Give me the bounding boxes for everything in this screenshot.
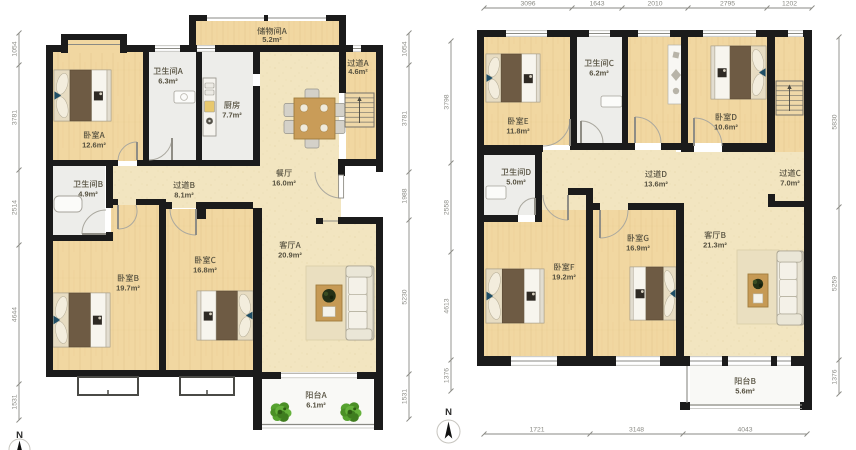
svg-text:5.6m²: 5.6m² [735, 387, 755, 396]
svg-text:4.6m²: 4.6m² [348, 67, 368, 76]
svg-text:1376: 1376 [832, 369, 839, 384]
svg-text:4043: 4043 [737, 427, 752, 434]
svg-text:11.8m²: 11.8m² [506, 127, 530, 136]
svg-text:3798: 3798 [444, 94, 451, 109]
svg-text:1988: 1988 [402, 188, 409, 203]
svg-text:1531: 1531 [12, 394, 19, 409]
svg-text:1376: 1376 [444, 368, 451, 383]
svg-text:3781: 3781 [12, 110, 19, 125]
svg-text:6.2m²: 6.2m² [589, 69, 609, 78]
svg-text:10.6m²: 10.6m² [714, 123, 738, 132]
svg-text:6.3m²: 6.3m² [158, 77, 178, 86]
svg-text:16.9m²: 16.9m² [626, 244, 650, 253]
svg-text:4.9m²: 4.9m² [78, 190, 98, 199]
svg-text:7.7m²: 7.7m² [222, 111, 242, 120]
svg-text:5.2m²: 5.2m² [262, 35, 282, 44]
svg-text:5230: 5230 [402, 289, 409, 304]
svg-text:5.0m²: 5.0m² [506, 178, 526, 187]
svg-text:3096: 3096 [520, 1, 535, 8]
svg-text:8.1m²: 8.1m² [174, 191, 194, 200]
svg-text:13.6m²: 13.6m² [644, 180, 668, 189]
svg-text:19.7m²: 19.7m² [116, 284, 140, 293]
svg-text:1643: 1643 [589, 1, 604, 8]
svg-text:3781: 3781 [402, 111, 409, 126]
svg-text:1202: 1202 [782, 1, 797, 8]
svg-text:1531: 1531 [402, 389, 409, 404]
svg-text:N: N [445, 407, 452, 418]
svg-text:2010: 2010 [647, 1, 662, 8]
svg-text:20.9m²: 20.9m² [278, 251, 302, 260]
svg-text:2558: 2558 [444, 200, 451, 215]
svg-text:6.1m²: 6.1m² [306, 401, 326, 410]
svg-text:4644: 4644 [12, 307, 19, 322]
svg-text:12.6m²: 12.6m² [82, 141, 106, 150]
svg-text:5259: 5259 [832, 276, 839, 291]
svg-text:4613: 4613 [444, 298, 451, 313]
svg-text:19.2m²: 19.2m² [552, 273, 576, 282]
svg-text:21.3m²: 21.3m² [703, 241, 727, 250]
svg-text:1054: 1054 [12, 41, 19, 56]
svg-text:16.0m²: 16.0m² [272, 179, 296, 188]
svg-text:3148: 3148 [629, 427, 644, 434]
svg-text:1054: 1054 [402, 41, 409, 56]
svg-text:1721: 1721 [529, 427, 544, 434]
svg-text:2514: 2514 [12, 200, 19, 215]
svg-text:16.8m²: 16.8m² [193, 266, 217, 275]
svg-text:5830: 5830 [832, 114, 839, 129]
svg-text:2795: 2795 [720, 1, 735, 8]
svg-text:7.0m²: 7.0m² [780, 179, 800, 188]
